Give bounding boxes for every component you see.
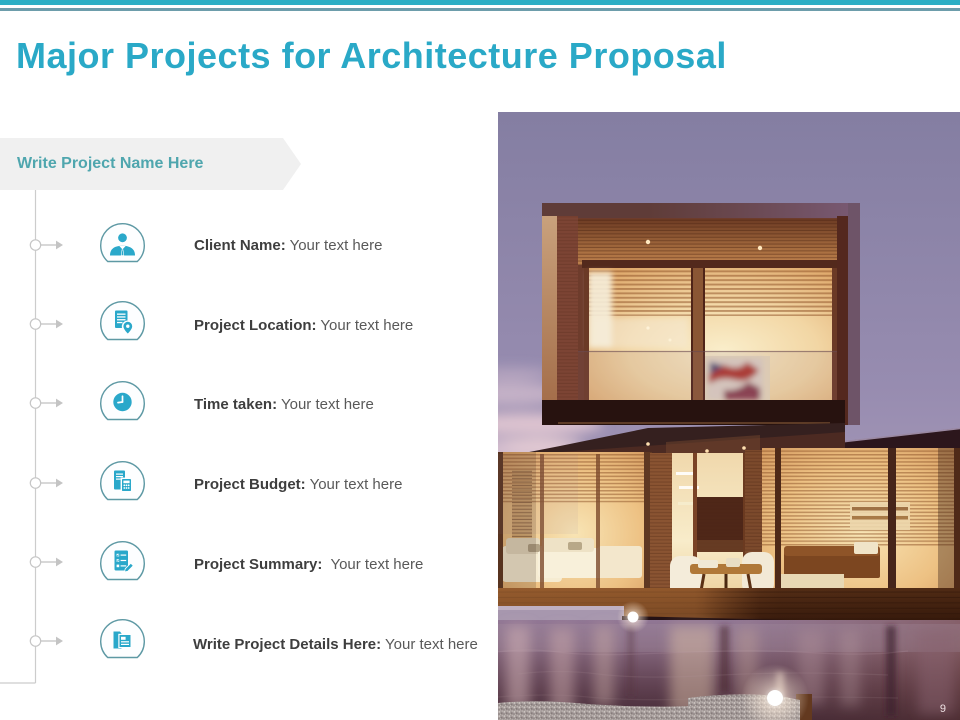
svg-text:9: 9 <box>940 703 946 715</box>
